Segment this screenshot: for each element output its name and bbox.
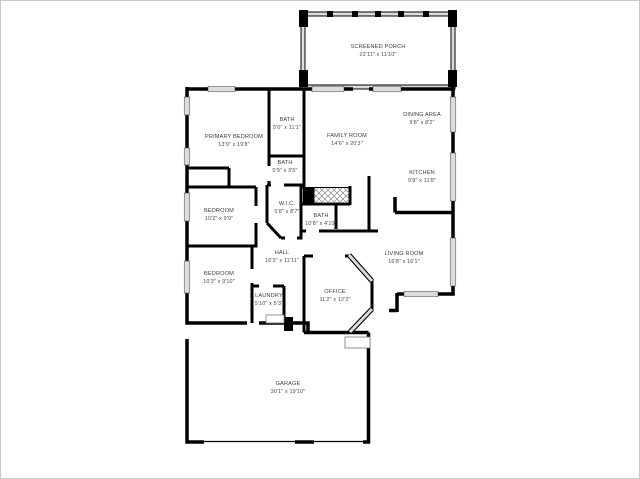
room-name: OFFICE bbox=[319, 288, 350, 296]
room-name: BATH bbox=[272, 159, 297, 167]
room-garage: GARAGE 30'1" x 19'10" bbox=[271, 380, 306, 397]
room-dims: 23'11" x 11'10" bbox=[351, 51, 406, 59]
room-hall: HALL 16'3" x 11'11" bbox=[265, 249, 299, 266]
room-dims: 5'8" x 8'7" bbox=[274, 208, 299, 216]
room-dims: 10'8" x 4'10" bbox=[305, 220, 337, 228]
room-dims: 16'8" x 16'1" bbox=[385, 258, 424, 266]
room-bath-primary: BATH 5'0" x 11'1" bbox=[273, 116, 301, 133]
room-bath-2: BATH 5'9" x 3'5" bbox=[272, 159, 297, 176]
floorplan-image: SCREENED PORCH 23'11" x 11'10" PRIMARY B… bbox=[0, 0, 640, 479]
room-office: OFFICE 11'2" x 12'2" bbox=[319, 288, 350, 305]
room-name: GARAGE bbox=[271, 380, 306, 388]
room-kitchen: KITCHEN 9'8" x 11'8" bbox=[408, 169, 436, 186]
room-name: HALL bbox=[265, 249, 299, 257]
room-name: W.I.C. bbox=[274, 200, 299, 208]
floorplan-walls bbox=[1, 1, 639, 478]
room-dims: 9'8" x 8'2" bbox=[403, 119, 441, 127]
room-name: BATH bbox=[305, 212, 337, 220]
room-bedroom-1: BEDROOM 10'2" x 9'9" bbox=[204, 207, 234, 224]
room-name: FAMILY ROOM bbox=[327, 132, 367, 140]
room-dims: 11'2" x 12'2" bbox=[319, 296, 350, 304]
stairs-and-details bbox=[204, 187, 370, 442]
room-laundry: LAUNDRY 5'10" x 5'3" bbox=[255, 292, 283, 309]
room-primary-bedroom: PRIMARY BEDROOM 13'9" x 19'8" bbox=[205, 133, 263, 150]
room-screened-porch: SCREENED PORCH 23'11" x 11'10" bbox=[351, 43, 406, 60]
room-name: LAUNDRY bbox=[255, 292, 283, 300]
room-wic: W.I.C. 5'8" x 8'7" bbox=[274, 200, 299, 217]
room-bath-3: BATH 10'8" x 4'10" bbox=[305, 212, 337, 229]
room-dims: 16'3" x 11'11" bbox=[265, 257, 299, 265]
room-living-room: LIVING ROOM 16'8" x 16'1" bbox=[385, 250, 424, 267]
room-dims: 5'9" x 3'5" bbox=[272, 167, 297, 175]
room-name: BATH bbox=[273, 116, 301, 124]
room-name: BEDROOM bbox=[204, 207, 234, 215]
room-dining-area: DINING AREA 9'8" x 8'2" bbox=[403, 111, 441, 128]
room-name: LIVING ROOM bbox=[385, 250, 424, 258]
room-family-room: FAMILY ROOM 14'6" x 20'3" bbox=[327, 132, 367, 149]
room-dims: 10'2" x 9'9" bbox=[204, 215, 234, 223]
room-dims: 5'10" x 5'3" bbox=[255, 300, 283, 308]
room-bedroom-2: BEDROOM 10'3" x 9'10" bbox=[203, 270, 235, 287]
room-dims: 9'8" x 11'8" bbox=[408, 177, 436, 185]
room-name: BEDROOM bbox=[203, 270, 235, 278]
room-name: KITCHEN bbox=[408, 169, 436, 177]
room-dims: 13'9" x 19'8" bbox=[205, 141, 263, 149]
room-dims: 30'1" x 19'10" bbox=[271, 388, 306, 396]
room-name: SCREENED PORCH bbox=[351, 43, 406, 51]
room-dims: 10'3" x 9'10" bbox=[203, 278, 235, 286]
bay-windows bbox=[349, 255, 372, 332]
room-name: DINING AREA bbox=[403, 111, 441, 119]
room-dims: 5'0" x 11'1" bbox=[273, 124, 301, 132]
room-dims: 14'6" x 20'3" bbox=[327, 140, 367, 148]
room-name: PRIMARY BEDROOM bbox=[205, 133, 263, 141]
